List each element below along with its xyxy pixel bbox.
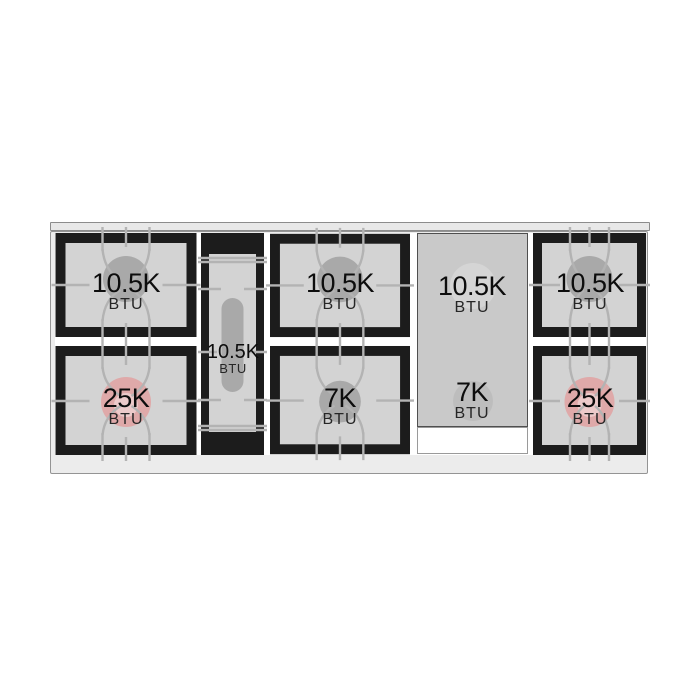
burner-btu-unit: BTU	[530, 296, 650, 313]
burner-btu-unit: BTU	[530, 411, 650, 428]
burner-btu-unit: BTU	[66, 411, 186, 428]
griddle-label: 10.5K BTU	[412, 273, 532, 316]
burner-btu-unit: BTU	[280, 411, 400, 428]
burner-btu-unit: BTU	[412, 299, 532, 316]
burner-label: 10.5K BTU	[530, 270, 650, 313]
burner-btu-value: 7K	[280, 385, 400, 411]
page: 10.5K BTU 25K BTU 10.5K BTU 10.5K BTU 7K…	[0, 0, 700, 700]
cooktop-back-rail	[50, 222, 650, 231]
burner-btu-unit: BTU	[193, 362, 273, 376]
burner-label: 10.5K BTU	[66, 270, 186, 313]
cooktop-diagram: 10.5K BTU 25K BTU 10.5K BTU 10.5K BTU 7K…	[50, 222, 650, 476]
burner-btu-value: 10.5K	[530, 270, 650, 296]
burner-label: 25K BTU	[66, 385, 186, 428]
griddle-label: 7K BTU	[412, 379, 532, 422]
burner-btu-value: 7K	[412, 379, 532, 405]
burner-btu-unit: BTU	[412, 405, 532, 422]
burner-btu-value: 25K	[66, 385, 186, 411]
burner-btu-unit: BTU	[66, 296, 186, 313]
burner-btu-unit: BTU	[280, 296, 400, 313]
burner-btu-value: 10.5K	[193, 342, 273, 362]
burner-btu-value: 10.5K	[412, 273, 532, 299]
burner-label: 25K BTU	[530, 385, 650, 428]
burner-label: 7K BTU	[280, 385, 400, 428]
burner-btu-value: 10.5K	[280, 270, 400, 296]
burner-btu-value: 25K	[530, 385, 650, 411]
burner-btu-value: 10.5K	[66, 270, 186, 296]
burner-label: 10.5K BTU	[193, 342, 273, 376]
burner-label: 10.5K BTU	[280, 270, 400, 313]
griddle-drip-tray	[417, 427, 528, 454]
